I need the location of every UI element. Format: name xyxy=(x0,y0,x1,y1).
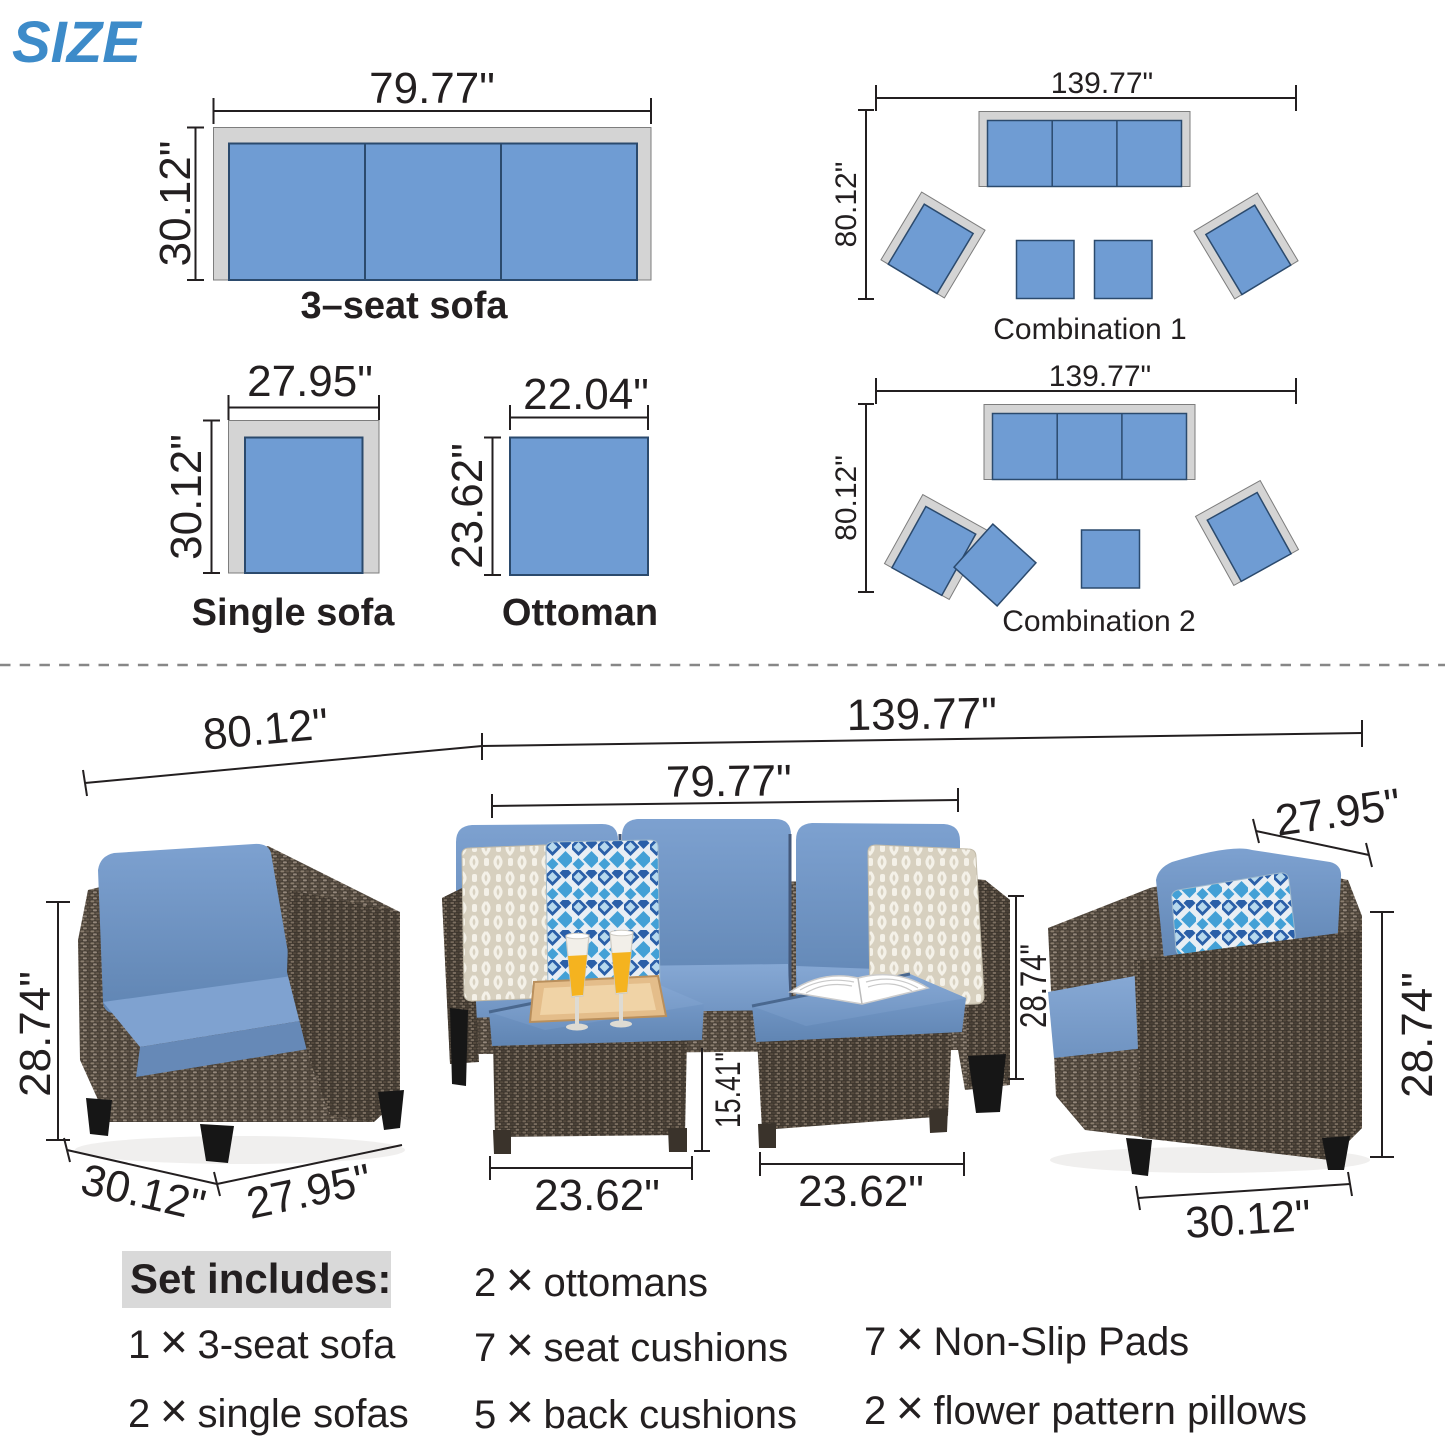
svg-text:27.95": 27.95" xyxy=(247,357,373,406)
svg-text:139.77": 139.77" xyxy=(846,689,997,740)
svg-text:7 × seat cushions: 7 × seat cushions xyxy=(474,1319,788,1372)
svg-text:1 × 3-seat sofa: 1 × 3-seat sofa xyxy=(128,1316,396,1369)
svg-text:Combination 2: Combination 2 xyxy=(1002,605,1195,638)
svg-text:23.62": 23.62" xyxy=(798,1167,924,1216)
svg-text:2 × flower pattern pillows: 2 × flower pattern pillows xyxy=(864,1382,1307,1435)
svg-text:Combination 1: Combination 1 xyxy=(993,313,1186,346)
svg-text:28.74": 28.74" xyxy=(11,971,60,1097)
svg-text:3–seat sofa: 3–seat sofa xyxy=(300,285,508,327)
svg-text:28.74": 28.74" xyxy=(1013,944,1054,1028)
svg-text:2 × single sofas: 2 × single sofas xyxy=(128,1385,409,1438)
svg-text:80.12": 80.12" xyxy=(830,455,863,541)
svg-text:23.62": 23.62" xyxy=(443,443,492,569)
svg-text:15.41": 15.41" xyxy=(709,1052,748,1128)
svg-text:79.77": 79.77" xyxy=(369,64,495,113)
svg-text:Single sofa: Single sofa xyxy=(192,592,396,634)
svg-text:23.62": 23.62" xyxy=(534,1171,660,1220)
svg-text:SIZE: SIZE xyxy=(12,10,143,75)
svg-text:79.77": 79.77" xyxy=(666,756,792,807)
svg-text:30.12": 30.12" xyxy=(162,434,211,560)
svg-text:7 × Non-Slip Pads: 7 × Non-Slip Pads xyxy=(864,1313,1189,1366)
svg-text:2 × ottomans: 2 × ottomans xyxy=(474,1254,708,1307)
svg-text:30.12": 30.12" xyxy=(151,141,200,267)
svg-text:22.04": 22.04" xyxy=(523,370,649,419)
svg-text:28.74": 28.74" xyxy=(1393,972,1442,1098)
svg-text:Set includes:: Set includes: xyxy=(130,1255,391,1302)
svg-text:5 × back cushions: 5 × back cushions xyxy=(474,1386,797,1439)
svg-text:139.77": 139.77" xyxy=(1051,67,1153,100)
svg-text:30.12": 30.12" xyxy=(1184,1191,1313,1248)
svg-text:139.77": 139.77" xyxy=(1049,360,1151,393)
svg-text:80.12": 80.12" xyxy=(830,162,863,248)
svg-text:Ottoman: Ottoman xyxy=(502,592,658,634)
